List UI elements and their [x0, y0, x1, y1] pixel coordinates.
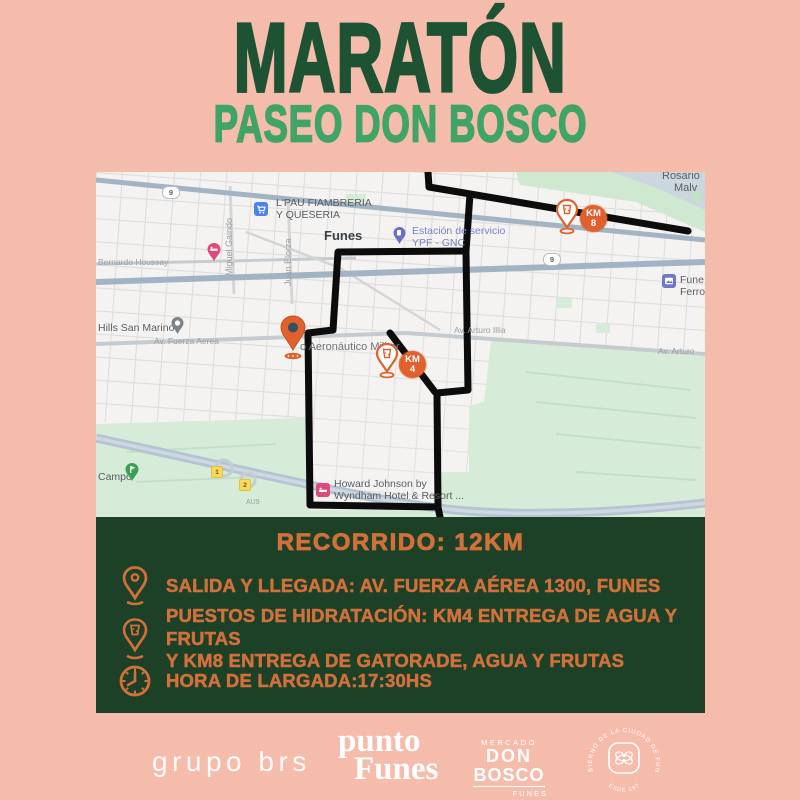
street-label-arturo-illia: Av. Arturo Illia — [454, 326, 506, 335]
hotel-icon — [316, 483, 330, 502]
route-map: L'PAU FIAMBRERIA Y QUESERIA Funes Estaci… — [96, 172, 705, 517]
poi-label-rosario: Rosario — [662, 172, 700, 182]
supermarket-icon — [254, 202, 268, 221]
panel-heading: RECORRIDO: 12KM — [96, 529, 705, 557]
km4-marker: KM4 — [399, 351, 426, 378]
svg-text:GOBIERNO DE LA CIUDAD DE FUNES: GOBIERNO DE LA CIUDAD DE FUNES — [582, 716, 660, 774]
route-9-shield: 9 — [162, 186, 180, 199]
start-time-text: HORA DE LARGADA:17:30HS — [166, 670, 432, 693]
poi-label-hills: Hills San Marino — [98, 323, 174, 335]
poi-label-malvinas: Malv — [674, 182, 697, 194]
golf-pin-icon — [124, 462, 140, 488]
info-panel: RECORRIDO: 12KM SALIDA Y LLEGADA: AV. FU… — [96, 517, 705, 713]
badge-top-text: GOBIERNO DE LA CIUDAD DE FUNES — [582, 716, 660, 774]
km8-marker: KM8 — [580, 205, 607, 232]
gas-station-pin-icon — [392, 226, 407, 251]
street-label-au9: AU9 — [246, 499, 260, 507]
start-finish-text: SALIDA Y LLEGADA: AV. FUERZA AÉREA 1300,… — [166, 575, 660, 598]
subtitle-text: PASEO DON BOSCO — [213, 98, 587, 150]
hydration-pin-km8 — [554, 198, 580, 240]
highway-1-shield: 1 — [211, 466, 223, 478]
hydration-pin-km4 — [374, 342, 400, 384]
clock-icon — [116, 663, 154, 699]
street-label-fuerza-aerea: Av. Fuerza Aerea — [154, 337, 219, 346]
city-government-badge: GOBIERNO DE LA CIUDAD DE FUNES DESDE 187… — [582, 716, 666, 800]
poi-label-lpau: L'PAU FIAMBRERIA Y QUESERIA — [276, 198, 372, 221]
poi-label-howard: Howard Johnson by Wyndham Hotel & Resort… — [334, 479, 464, 502]
route-9-shield: 9 — [543, 253, 561, 266]
badge-clover-emblem — [616, 752, 632, 764]
title-text: MARATÓN — [233, 9, 566, 108]
start-finish-pin — [278, 314, 308, 365]
highway-2-shield: 2 — [239, 479, 251, 491]
street-label-bernardo: Bernardo Houssay — [98, 258, 168, 267]
panel-row-start: SALIDA Y LLEGADA: AV. FUERZA AÉREA 1300,… — [116, 565, 660, 607]
hydration-pin-icon — [116, 617, 154, 661]
page-title: MARATÓN — [0, 14, 800, 102]
hotel-pin-icon — [206, 242, 222, 268]
poi-label-ferro: Fune Ferro — [680, 275, 705, 298]
marathon-poster: MARATÓN PASEO DON BOSCO — [0, 0, 800, 800]
place-pin-icon — [170, 316, 185, 341]
page-subtitle: PASEO DON BOSCO — [0, 100, 800, 147]
punto-funes-logo: punto Funes — [338, 728, 438, 783]
poi-label-ypf: Estación de servicio YPF - GNC — [412, 226, 505, 249]
grupo-brs-logo: grupo brs — [152, 746, 311, 778]
street-label-juan-elorza: Juan Elorza — [283, 238, 293, 286]
location-pin-icon — [116, 565, 154, 607]
street-label-av-arturo: Av. Arturo — [658, 347, 695, 356]
mercado-don-bosco-logo: MERCADO DON BOSCO FUNES — [470, 738, 548, 798]
panel-row-time: HORA DE LARGADA:17:30HS — [116, 663, 432, 699]
street-label-miguel-gaindo: Miguel Gaindo — [224, 218, 234, 276]
badge-emblem-frame — [609, 743, 639, 773]
railway-photo-icon — [662, 274, 676, 293]
town-label-funes: Funes — [324, 229, 362, 243]
